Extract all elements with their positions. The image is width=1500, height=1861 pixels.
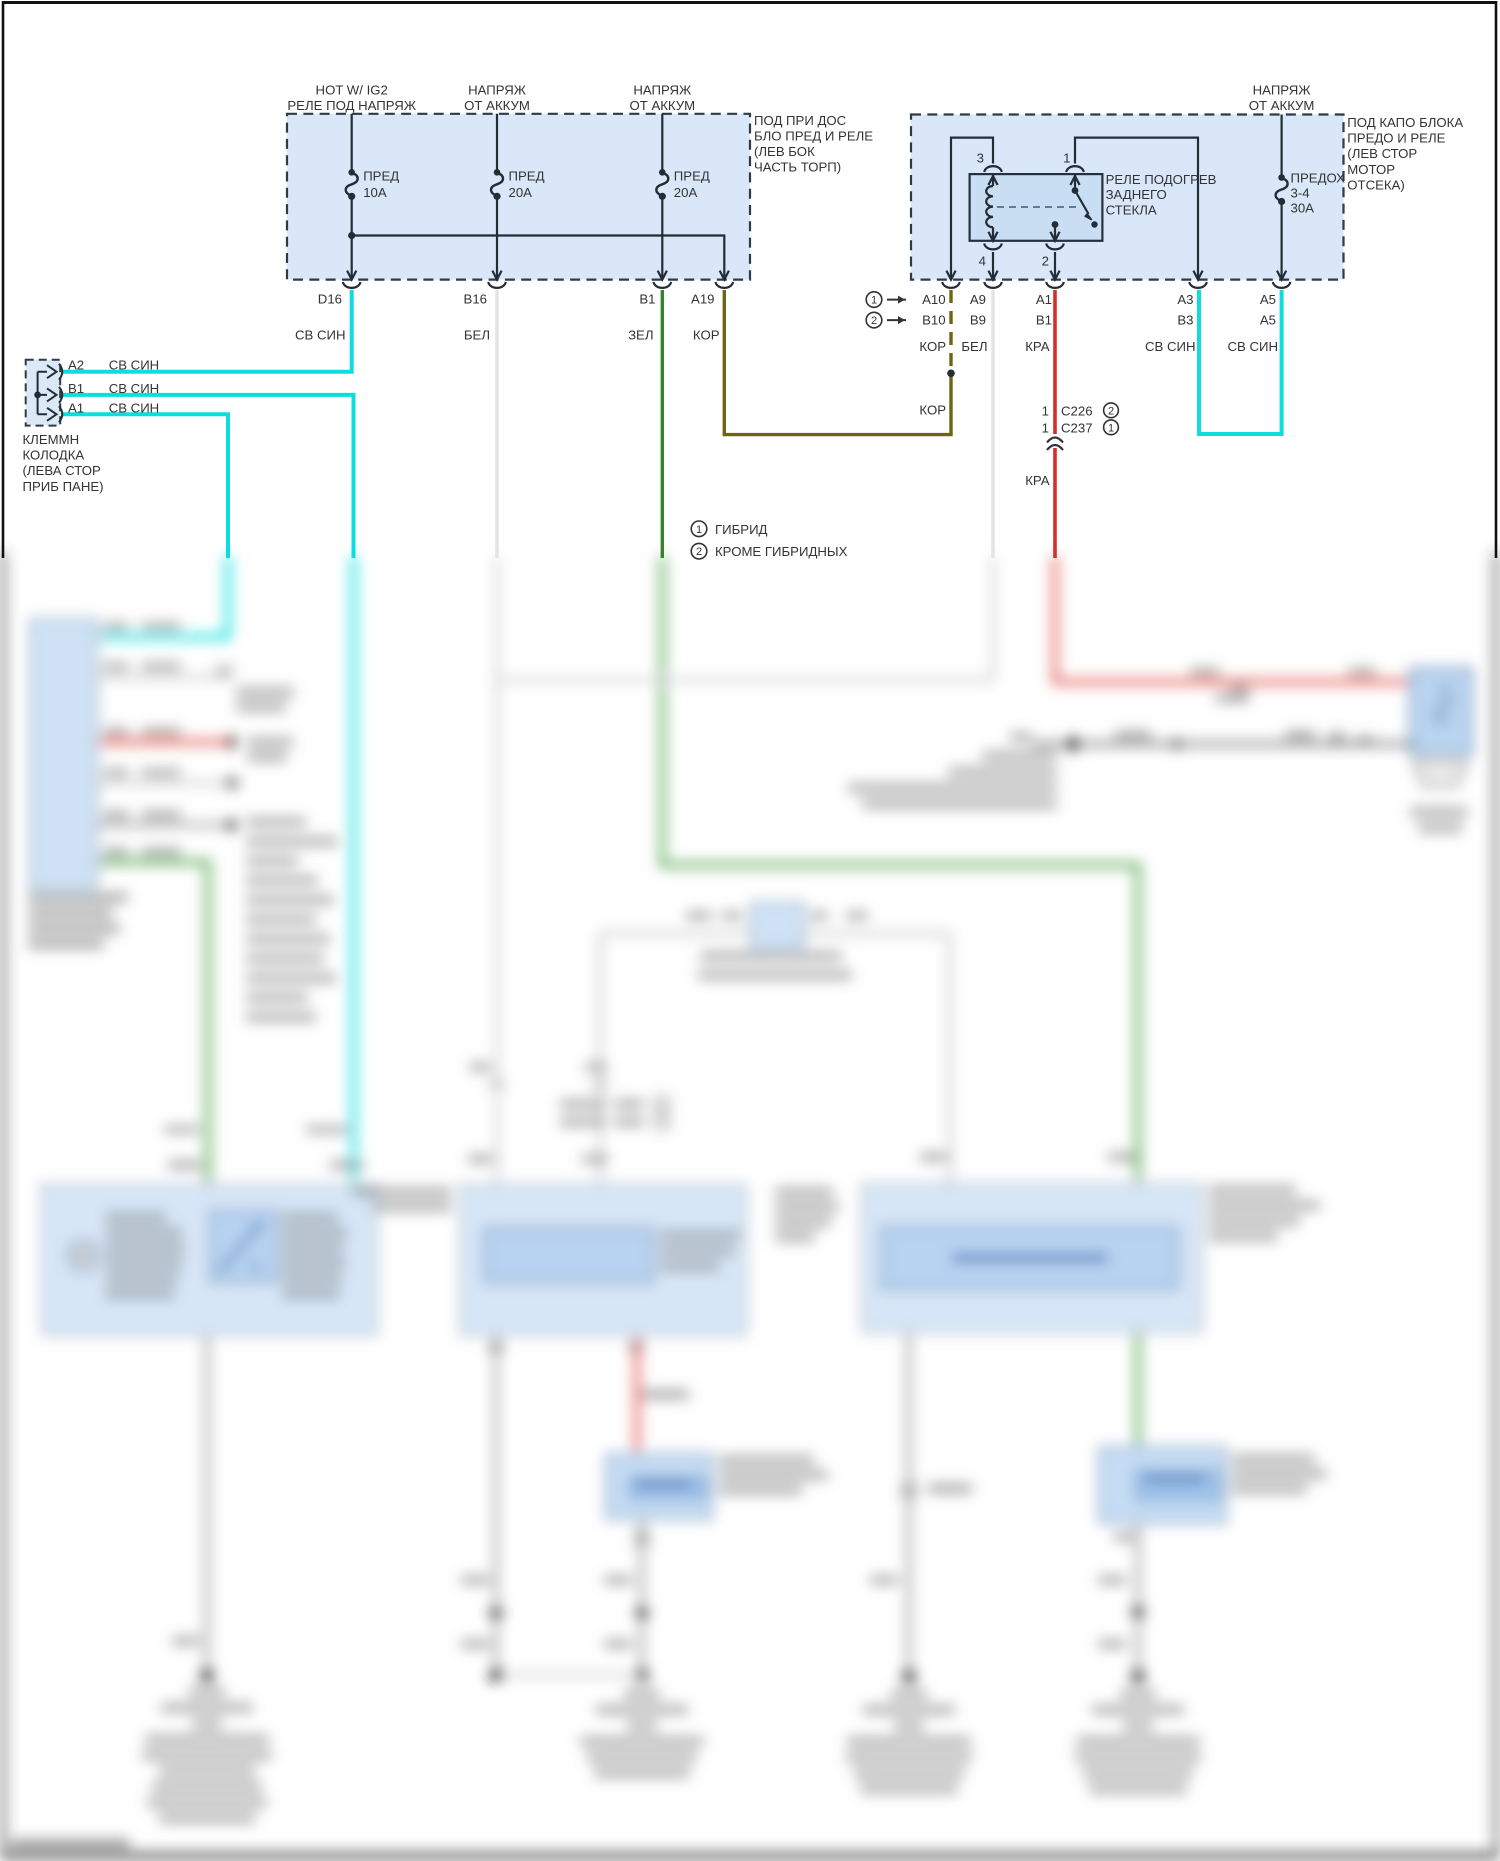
svg-text:БЕЛ: БЕЛ: [961, 339, 987, 354]
svg-text:A1: A1: [1036, 292, 1052, 307]
svg-text:КОЛОДКА: КОЛОДКА: [23, 448, 85, 463]
svg-text:A9: A9: [970, 292, 986, 307]
svg-text:ПРЕД: ПРЕД: [509, 169, 545, 184]
svg-text:20А: 20А: [674, 185, 698, 200]
svg-text:КРА: КРА: [1025, 473, 1050, 488]
svg-text:КЛЕММН: КЛЕММН: [23, 432, 80, 447]
svg-text:ЗАДНЕГО: ЗАДНЕГО: [1106, 187, 1167, 202]
svg-text:КОР: КОР: [919, 403, 946, 418]
svg-text:МОТОР: МОТОР: [1347, 162, 1395, 177]
svg-text:A3: A3: [1177, 292, 1193, 307]
svg-text:20А: 20А: [509, 185, 533, 200]
svg-text:СВ СИН: СВ СИН: [1227, 339, 1278, 354]
svg-text:HOT W/ IG2: HOT W/ IG2: [316, 83, 388, 98]
svg-text:КОР: КОР: [919, 339, 946, 354]
svg-text:ОТСЕКА): ОТСЕКА): [1347, 177, 1405, 192]
svg-text:ЗЕЛ: ЗЕЛ: [628, 328, 653, 343]
svg-text:A2: A2: [68, 358, 84, 373]
svg-text:D16: D16: [318, 292, 342, 307]
svg-text:СВ СИН: СВ СИН: [295, 328, 346, 343]
svg-text:СВ СИН: СВ СИН: [109, 400, 160, 415]
svg-text:C237: C237: [1061, 421, 1093, 436]
svg-text:1: 1: [1042, 404, 1049, 419]
svg-text:A5: A5: [1260, 313, 1276, 328]
svg-text:2: 2: [696, 546, 702, 558]
svg-text:C226: C226: [1061, 404, 1093, 419]
svg-text:A19: A19: [691, 292, 714, 307]
svg-text:БЛО ПРЕД И РЕЛЕ: БЛО ПРЕД И РЕЛЕ: [754, 129, 873, 144]
svg-text:ОТ АККУМ: ОТ АККУМ: [464, 98, 530, 113]
svg-text:B1: B1: [1036, 313, 1052, 328]
svg-text:2: 2: [1042, 254, 1049, 269]
svg-text:A1: A1: [68, 400, 84, 415]
svg-text:3-4: 3-4: [1291, 186, 1310, 201]
svg-text:(ЛЕВ БОК: (ЛЕВ БОК: [754, 144, 815, 159]
svg-text:3: 3: [977, 151, 984, 166]
svg-text:A10: A10: [922, 292, 945, 307]
svg-text:ПРЕД: ПРЕД: [363, 169, 399, 184]
svg-text:B9: B9: [970, 313, 986, 328]
svg-text:БЕЛ: БЕЛ: [464, 328, 490, 343]
svg-text:КРА: КРА: [1025, 339, 1050, 354]
svg-text:НАПРЯЖ: НАПРЯЖ: [633, 83, 691, 98]
svg-text:B1: B1: [68, 381, 84, 396]
svg-text:КРОМЕ ГИБРИДНЫХ: КРОМЕ ГИБРИДНЫХ: [715, 544, 848, 559]
svg-text:ЧАСТЬ ТОРП): ЧАСТЬ ТОРП): [754, 159, 841, 174]
svg-text:ПОД ПРИ ДОС: ПОД ПРИ ДОС: [754, 113, 847, 128]
svg-text:НАПРЯЖ: НАПРЯЖ: [1253, 83, 1311, 98]
svg-text:2: 2: [871, 315, 877, 327]
svg-text:ГИБРИД: ГИБРИД: [715, 522, 768, 537]
svg-text:B1: B1: [639, 292, 655, 307]
svg-text:1: 1: [1063, 151, 1070, 166]
svg-text:1: 1: [1108, 422, 1114, 434]
svg-text:1: 1: [696, 524, 702, 536]
svg-text:СТЕКЛА: СТЕКЛА: [1106, 202, 1157, 217]
svg-text:ПРЕДОХ: ПРЕДОХ: [1291, 171, 1346, 186]
svg-text:ОТ АККУМ: ОТ АККУМ: [629, 98, 695, 113]
svg-text:10А: 10А: [363, 185, 387, 200]
svg-text:4: 4: [979, 254, 986, 269]
svg-text:1: 1: [1042, 421, 1049, 436]
svg-text:РЕЛЕ ПОД НАПРЯЖ: РЕЛЕ ПОД НАПРЯЖ: [287, 98, 416, 113]
svg-text:1: 1: [871, 295, 877, 307]
svg-text:2: 2: [1108, 405, 1114, 417]
svg-text:B10: B10: [922, 313, 945, 328]
svg-text:ПОД КАПО БЛОКА: ПОД КАПО БЛОКА: [1347, 115, 1463, 130]
svg-text:ПРЕД: ПРЕД: [674, 169, 710, 184]
svg-text:РЕЛЕ ПОДОГРЕВ: РЕЛЕ ПОДОГРЕВ: [1106, 172, 1217, 187]
svg-text:СВ СИН: СВ СИН: [109, 381, 160, 396]
svg-text:СВ СИН: СВ СИН: [1145, 339, 1196, 354]
svg-text:(ЛЕВА СТОР: (ЛЕВА СТОР: [23, 463, 101, 478]
svg-text:ОТ АККУМ: ОТ АККУМ: [1249, 98, 1315, 113]
svg-text:30А: 30А: [1291, 201, 1315, 216]
svg-text:ПРИБ ПАНЕ): ПРИБ ПАНЕ): [23, 479, 104, 494]
svg-text:A5: A5: [1260, 292, 1276, 307]
svg-text:СВ СИН: СВ СИН: [109, 358, 160, 373]
svg-text:B16: B16: [464, 292, 487, 307]
svg-text:КОР: КОР: [693, 328, 720, 343]
svg-text:ПРЕДО И РЕЛЕ: ПРЕДО И РЕЛЕ: [1347, 131, 1445, 146]
svg-text:НАПРЯЖ: НАПРЯЖ: [468, 83, 526, 98]
svg-text:(ЛЕВ СТОР: (ЛЕВ СТОР: [1347, 146, 1417, 161]
svg-text:B3: B3: [1177, 313, 1193, 328]
